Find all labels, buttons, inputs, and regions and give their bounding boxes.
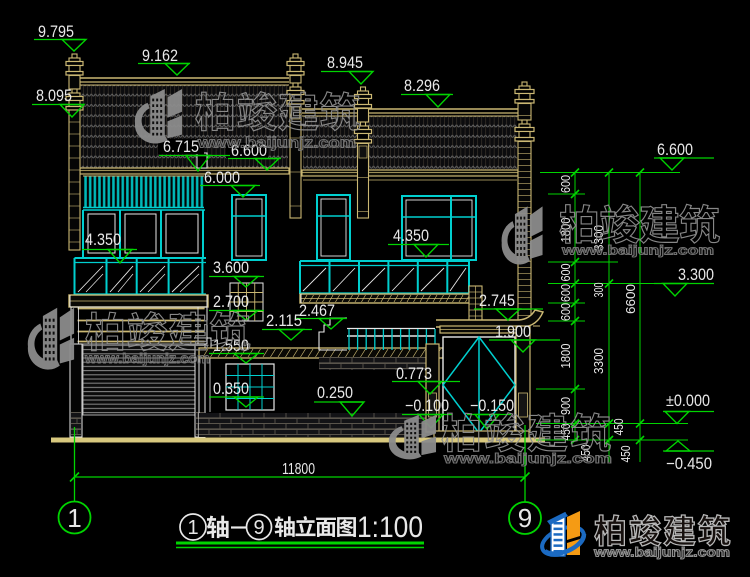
svg-text:9.162: 9.162 bbox=[142, 47, 178, 65]
svg-text:8.095: 8.095 bbox=[36, 87, 72, 105]
svg-text:www.baijunjz.com: www.baijunjz.com bbox=[197, 136, 356, 152]
svg-text:4.350: 4.350 bbox=[393, 227, 429, 245]
svg-text:8.296: 8.296 bbox=[404, 77, 440, 95]
svg-text:600: 600 bbox=[558, 175, 573, 193]
svg-text:900: 900 bbox=[558, 397, 573, 415]
svg-text:8.945: 8.945 bbox=[327, 54, 363, 72]
svg-text:1.900: 1.900 bbox=[495, 323, 531, 341]
svg-text:9.795: 9.795 bbox=[38, 23, 74, 41]
svg-text:600: 600 bbox=[558, 303, 573, 321]
svg-text:2.115: 2.115 bbox=[266, 312, 302, 330]
svg-text:600: 600 bbox=[558, 284, 573, 302]
svg-text:300: 300 bbox=[591, 283, 606, 298]
svg-text:−0.150: −0.150 bbox=[470, 397, 514, 415]
svg-text:3.600: 3.600 bbox=[213, 259, 249, 277]
svg-text:6.600: 6.600 bbox=[657, 141, 693, 159]
svg-text:4.350: 4.350 bbox=[85, 231, 121, 249]
svg-text:1800: 1800 bbox=[558, 344, 573, 369]
svg-text:9: 9 bbox=[518, 503, 532, 533]
svg-text:www.baijunjz.com: www.baijunjz.com bbox=[561, 244, 714, 258]
svg-text:3300: 3300 bbox=[591, 348, 606, 374]
svg-text:450: 450 bbox=[611, 419, 626, 436]
svg-text:6600: 6600 bbox=[623, 284, 638, 314]
svg-text:0.773: 0.773 bbox=[396, 365, 432, 383]
svg-text:9: 9 bbox=[253, 517, 264, 539]
svg-text:1: 1 bbox=[67, 503, 81, 533]
svg-text:0.350: 0.350 bbox=[213, 380, 249, 398]
svg-text:±0.000: ±0.000 bbox=[666, 392, 710, 410]
svg-text:2.700: 2.700 bbox=[213, 293, 249, 311]
svg-text:11800: 11800 bbox=[282, 461, 315, 478]
svg-text:450: 450 bbox=[618, 446, 633, 463]
svg-text:www.baijunjz.com: www.baijunjz.com bbox=[443, 451, 612, 466]
svg-text:1: 1 bbox=[187, 517, 198, 539]
svg-text:0.250: 0.250 bbox=[317, 384, 353, 402]
svg-text:3.300: 3.300 bbox=[678, 266, 714, 284]
svg-text:www.baijunjz.com: www.baijunjz.com bbox=[593, 545, 730, 560]
svg-text:1:100: 1:100 bbox=[357, 511, 423, 544]
svg-text:2.467: 2.467 bbox=[299, 302, 335, 320]
svg-text:600: 600 bbox=[558, 264, 573, 282]
svg-text:www.baijunjz.com: www.baijunjz.com bbox=[84, 351, 210, 366]
svg-text:6.715: 6.715 bbox=[163, 138, 199, 156]
svg-text:2.745: 2.745 bbox=[479, 292, 515, 310]
svg-text:−0.100: −0.100 bbox=[405, 397, 449, 415]
svg-text:−0.450: −0.450 bbox=[666, 455, 712, 473]
svg-text:6.000: 6.000 bbox=[204, 169, 240, 187]
